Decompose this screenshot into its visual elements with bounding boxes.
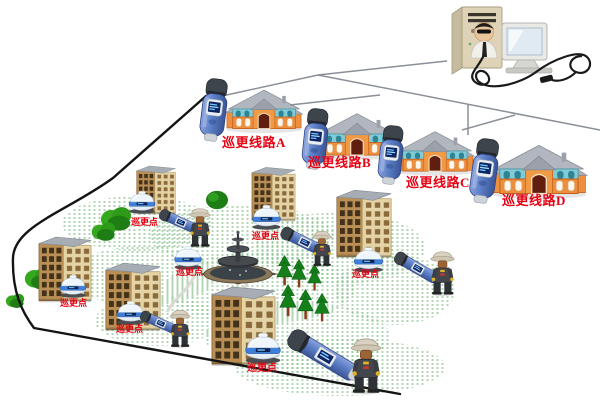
patrol-checkpoint-dome-icon (127, 191, 157, 214)
pc-tower (452, 7, 502, 74)
desktop-computer-with-operator-icon (440, 0, 600, 100)
route-a-label: 巡更线路A (222, 132, 286, 151)
patrol-point-label: 巡更点 (176, 265, 203, 278)
patrol-checkpoint-dome-icon (250, 205, 283, 230)
security-guard-figure-icon (188, 206, 212, 248)
patrol-system-diagram: 巡更线路A 巡更线路B 巡更线路C 巡更线路D 巡更点 巡更点 巡更点 巡更点 … (0, 0, 600, 400)
patrol-point-label: 巡更点 (352, 267, 379, 280)
route-b-label: 巡更线路B (308, 152, 371, 171)
patrol-checkpoint-dome-icon (58, 275, 88, 298)
patrol-point-label: 巡更点 (60, 296, 87, 309)
patrol-point-label: 巡更点 (116, 322, 143, 335)
route-c-label: 巡更线路C (406, 172, 470, 191)
patrol-point-label: 巡更点 (131, 215, 158, 228)
security-guard-figure-icon (168, 308, 192, 348)
security-guard-figure-icon (311, 229, 333, 267)
patrol-point-label: 巡更点 (252, 229, 279, 242)
patrol-point-label: 巡更点 (247, 359, 277, 374)
usb-plug (539, 74, 553, 83)
security-guard-figure-icon (429, 249, 456, 296)
security-guard-figure-icon (349, 335, 383, 395)
route-d-label: 巡更线路D (502, 190, 566, 209)
